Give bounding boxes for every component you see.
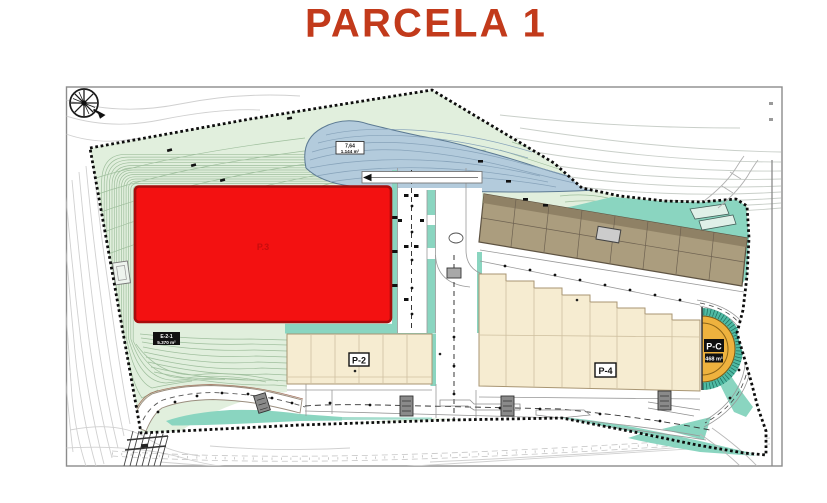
svg-text:468 m²: 468 m² bbox=[705, 356, 723, 363]
svg-text:P-4: P-4 bbox=[598, 366, 612, 376]
svg-text:1.144 m²: 1.144 m² bbox=[341, 149, 360, 154]
svg-text:P-2: P-2 bbox=[352, 356, 366, 366]
svg-text:P.3: P.3 bbox=[257, 242, 269, 252]
svg-text:5.370 m²: 5.370 m² bbox=[157, 340, 176, 345]
svg-text:P-C: P-C bbox=[706, 342, 722, 352]
svg-text:PARCELA 1: PARCELA 1 bbox=[305, 2, 547, 46]
